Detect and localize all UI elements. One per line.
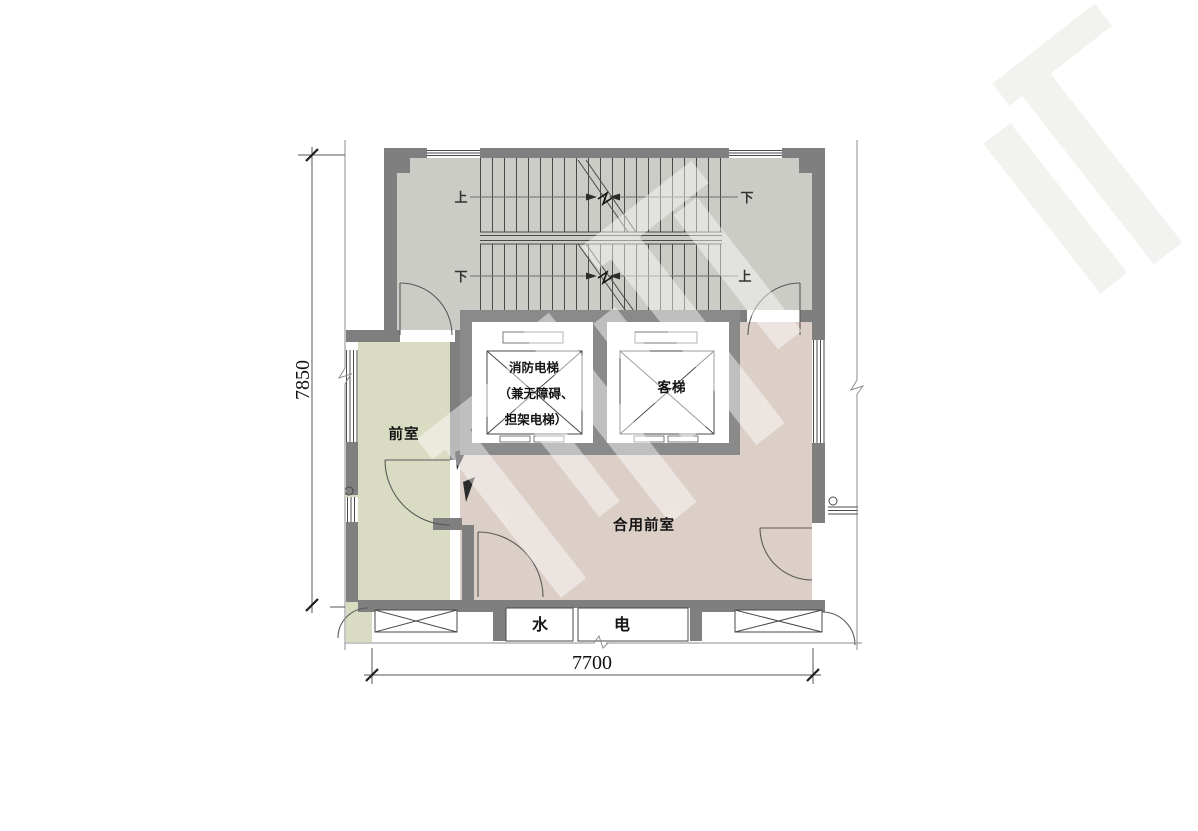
window-circle-symbol-right (829, 497, 837, 505)
fire-elevator-label-line1: 消防电梯 (509, 360, 560, 375)
dimension-height-label: 7850 (292, 360, 314, 400)
fire-elevator-label-line3: 担架电梯） (505, 412, 568, 427)
dimension-vertical: 7850 (292, 147, 345, 613)
electric-shaft-box (578, 608, 688, 641)
shared-anteroom-area (740, 322, 812, 600)
anteroom-label: 前室 (389, 425, 420, 443)
floor-plan-drawing: 7850 7700 上 下 下 上 前室 合用前室 消防电梯 (0, 0, 1198, 831)
stair-up-label-1: 上 (454, 190, 467, 205)
exterior-door-bottom-right (822, 612, 855, 645)
fire-elevator-label-line2: （兼无障碍、 (498, 386, 573, 401)
stair-up-label-2: 上 (738, 269, 751, 284)
passenger-elevator-label: 客梯 (657, 379, 687, 395)
shared-anteroom-label: 合用前室 (612, 516, 675, 534)
dimension-width-label: 7700 (572, 652, 612, 674)
water-shaft-label: 水 (532, 615, 549, 634)
floor-plan-canvas: 7850 7700 上 下 下 上 前室 合用前室 消防电梯 (0, 0, 1198, 831)
stair-down-label-2: 下 (454, 269, 467, 284)
electric-shaft-label: 电 (614, 615, 630, 634)
stair-down-label-1: 下 (740, 190, 753, 205)
dimension-horizontal: 7700 (364, 648, 821, 684)
